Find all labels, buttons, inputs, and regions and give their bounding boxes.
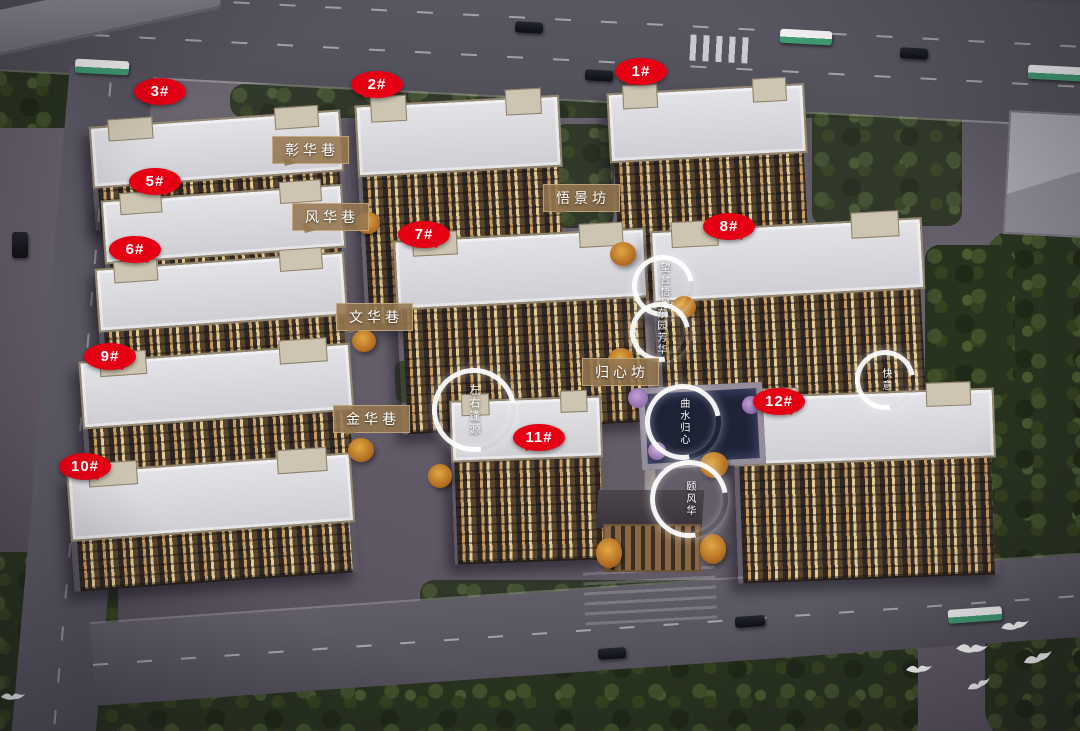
blossom-tree [628,388,648,408]
building-badge-9: 9# [84,343,136,370]
autumn-tree [428,464,452,488]
area-label-wujing-fang: 悟景坊 [543,184,620,212]
building-12 [732,387,1000,583]
car [598,647,627,660]
building-badge-3: 3# [134,78,186,105]
building-badge-8: 8# [703,213,755,240]
building-badge-12: 12# [753,388,805,415]
building-roof [354,95,562,178]
car [735,615,766,628]
building-roof [606,83,807,163]
adjacent-building [1003,110,1080,238]
building-badge-11: 11# [513,424,565,451]
car [585,69,614,81]
street-label-zhanghua-lane: 彰华巷 [272,136,349,164]
building-badge-10: 10# [59,453,111,480]
building-facade [739,458,994,584]
building-10 [66,452,359,592]
car [12,232,28,258]
ring-label: 快意 [878,368,893,392]
bus [1028,65,1080,82]
autumn-tree [610,242,636,266]
building-badge-2: 2# [351,71,403,98]
ring-label: 东园芳华 [653,308,668,356]
bus [75,59,130,76]
autumn-tree [348,438,374,462]
entrance-plaza [583,563,718,626]
bird-icon [904,661,933,678]
ring-label: 曲水归心 [676,398,691,446]
street-label-jinhua-lane: 金华巷 [333,405,410,433]
autumn-tree [700,534,726,564]
ring-label: 颐风华 [682,481,697,517]
area-label-guixin-fang: 归心坊 [582,358,659,386]
building-facade [454,457,603,564]
tree-cluster [925,245,1015,395]
car [900,47,929,59]
street-label-fenghua-lane: 风华巷 [292,203,369,231]
autumn-tree [596,538,622,568]
street-label-wenhua-lane: 文华巷 [336,303,413,331]
crosswalk [689,35,748,64]
building-badge-6: 6# [109,236,161,263]
ring-label: 左右逢源 [466,384,482,436]
residential-masterplan-aerial: 望台悟景 东园芳华 左右逢源 曲水归心 颐风华 快意 彰华巷 风华巷 文华巷 金… [0,0,1080,731]
building-badge-1: 1# [615,58,667,85]
building-badge-7: 7# [398,221,450,248]
tree-cluster [812,108,962,226]
bus [780,29,833,46]
car [515,21,544,33]
building-badge-5: 5# [129,168,181,195]
bird-icon [1000,618,1030,633]
